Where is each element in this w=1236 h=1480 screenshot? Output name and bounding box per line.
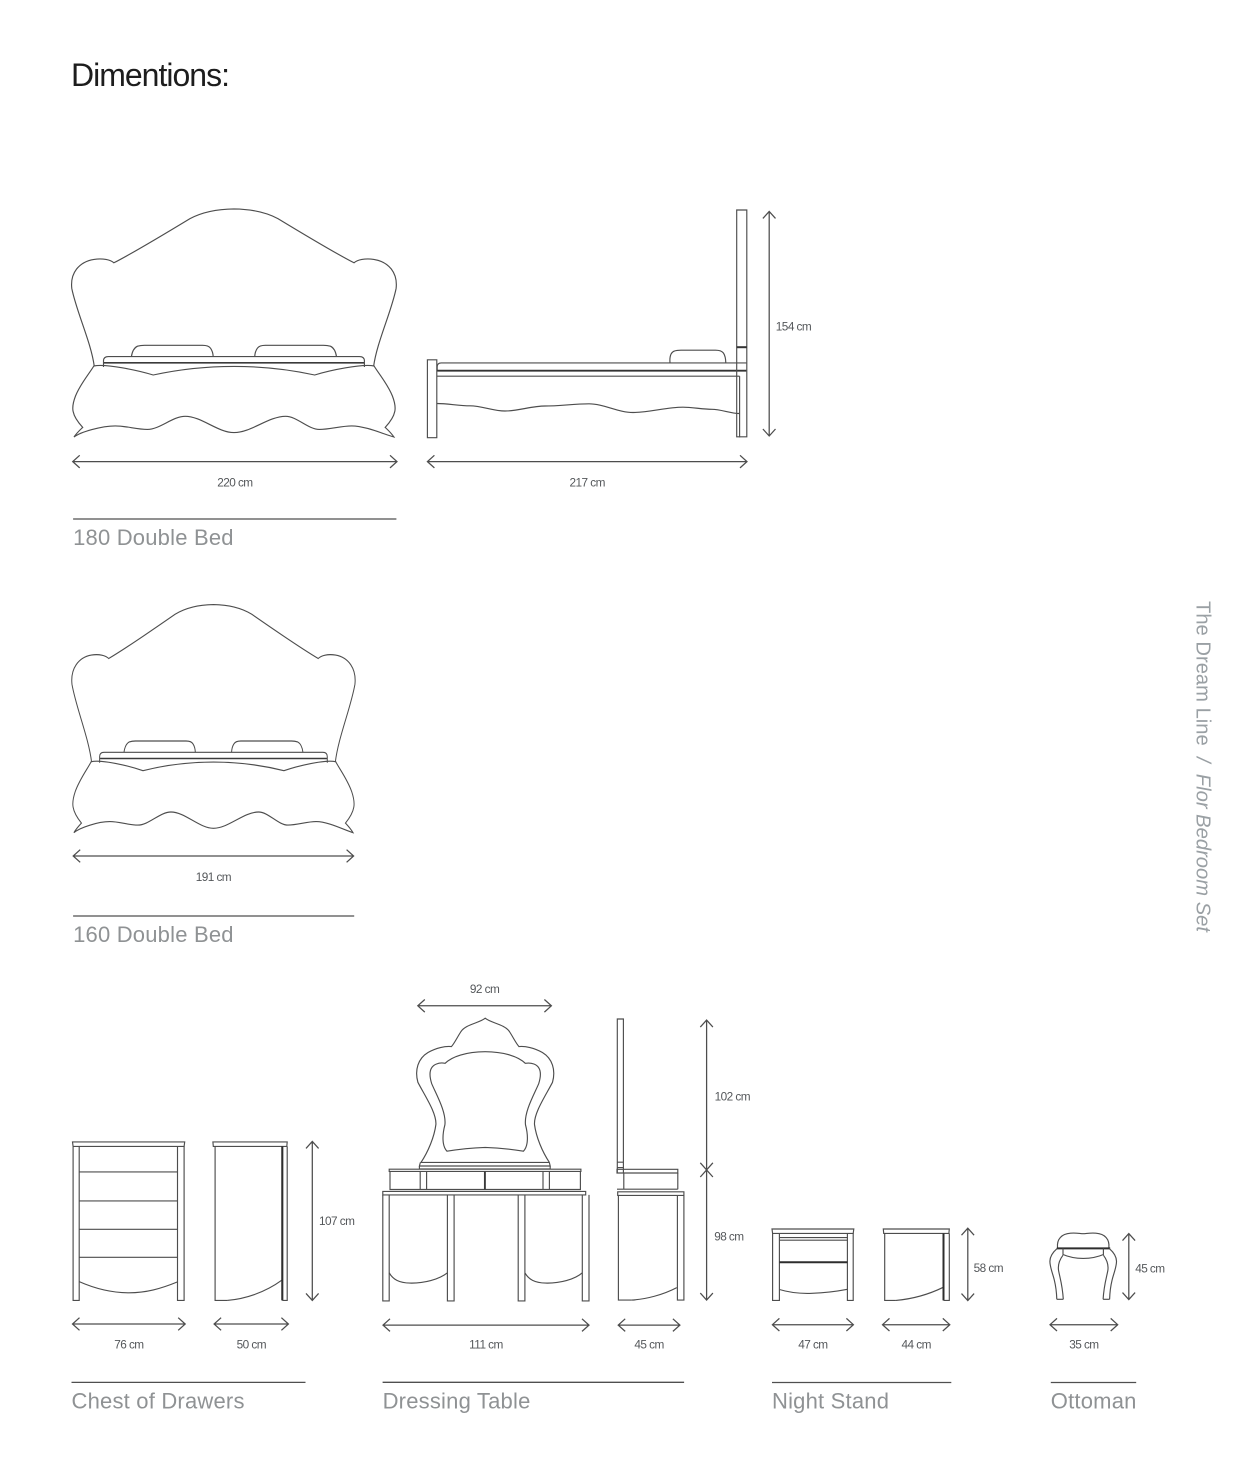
svg-text:45 cm: 45 cm bbox=[1135, 1261, 1165, 1275]
svg-text:58 cm: 58 cm bbox=[974, 1261, 1004, 1275]
svg-text:98 cm: 98 cm bbox=[714, 1230, 744, 1244]
svg-text:160 Double Bed: 160 Double Bed bbox=[73, 922, 234, 947]
svg-text:217 cm: 217 cm bbox=[570, 476, 606, 490]
svg-text:102 cm: 102 cm bbox=[715, 1089, 751, 1103]
svg-text:50 cm: 50 cm bbox=[237, 1338, 267, 1352]
svg-text:Ottoman: Ottoman bbox=[1051, 1389, 1137, 1414]
svg-text:107 cm: 107 cm bbox=[319, 1214, 355, 1228]
svg-text:180 Double Bed: 180 Double Bed bbox=[73, 525, 234, 550]
svg-text:154 cm: 154 cm bbox=[776, 319, 812, 333]
svg-text:44 cm: 44 cm bbox=[902, 1338, 932, 1352]
svg-text:220 cm: 220 cm bbox=[217, 476, 253, 490]
svg-text:Dressing Table: Dressing Table bbox=[383, 1388, 531, 1413]
svg-text:45 cm: 45 cm bbox=[634, 1338, 664, 1352]
svg-text:35 cm: 35 cm bbox=[1069, 1338, 1099, 1352]
svg-text:Chest of Drawers: Chest of Drawers bbox=[72, 1388, 245, 1413]
svg-text:111 cm: 111 cm bbox=[469, 1338, 503, 1352]
svg-text:Dimentions:: Dimentions: bbox=[71, 57, 229, 93]
svg-text:47 cm: 47 cm bbox=[798, 1338, 828, 1352]
svg-text:The Dream Line / Flor Bedroo: The Dream Line / Flor Bedroom Set bbox=[1192, 601, 1214, 933]
svg-text:191 cm: 191 cm bbox=[196, 870, 232, 884]
svg-text:92 cm: 92 cm bbox=[470, 982, 500, 996]
svg-text:76 cm: 76 cm bbox=[114, 1338, 144, 1352]
svg-text:Night Stand: Night Stand bbox=[772, 1389, 889, 1414]
